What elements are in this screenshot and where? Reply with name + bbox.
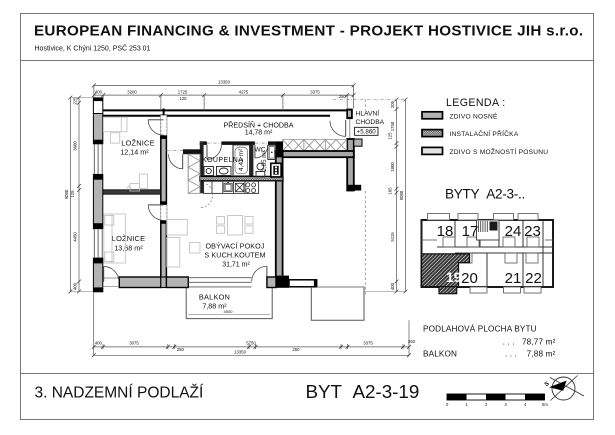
svg-text:OBÝVACÍ POKOJ: OBÝVACÍ POKOJ	[205, 241, 264, 250]
svg-text:. . . 7,88 m²: . . . 7,88 m²	[505, 350, 556, 359]
svg-text:5750: 5750	[246, 341, 256, 346]
svg-text:3375: 3375	[363, 341, 373, 346]
svg-text:9080: 9080	[399, 190, 404, 200]
svg-text:225: 225	[73, 97, 78, 105]
svg-text:ZDIVO S MOŽNOSTÍ POSUNU: ZDIVO S MOŽNOSTÍ POSUNU	[450, 147, 549, 156]
svg-text:S KUCH.KOUTEM: S KUCH.KOUTEM	[204, 251, 265, 260]
svg-text:. . . 78,77 m²: . . . 78,77 m²	[503, 338, 556, 347]
svg-text:400: 400	[73, 282, 78, 290]
svg-text:22: 22	[525, 270, 542, 287]
svg-text:3375: 3375	[310, 89, 320, 94]
svg-text:17: 17	[462, 223, 479, 240]
svg-text:BYT A2-3-19: BYT A2-3-19	[306, 381, 420, 402]
svg-text:21: 21	[505, 270, 522, 287]
svg-text:4450: 4450	[73, 232, 78, 242]
svg-text:3200: 3200	[127, 89, 137, 94]
svg-text:4,41 m²: 4,41 m²	[238, 148, 245, 171]
svg-text:1750: 1750	[390, 121, 395, 131]
svg-text:13350: 13350	[234, 350, 247, 355]
svg-text:205: 205	[390, 100, 395, 108]
svg-text:9080: 9080	[64, 189, 69, 199]
svg-text:250: 250	[339, 94, 347, 99]
svg-text:INSTALAČNÍ PŘÍČKA: INSTALAČNÍ PŘÍČKA	[450, 129, 519, 138]
svg-text:+5.860: +5.860	[357, 129, 377, 136]
svg-text:0: 0	[446, 402, 449, 407]
svg-text:Hostivice, K Chýni 1250, PSČ 2: Hostivice, K Chýni 1250, PSČ 253 01	[35, 44, 151, 53]
svg-text:BALKON: BALKON	[199, 293, 230, 302]
svg-text:LOŽNICE: LOŽNICE	[112, 234, 145, 243]
svg-text:19: 19	[446, 269, 462, 285]
svg-text:14,78 m²: 14,78 m²	[245, 129, 273, 136]
svg-text:23: 23	[524, 223, 541, 240]
svg-text:LEGENDA :: LEGENDA :	[446, 97, 506, 109]
svg-text:400: 400	[95, 341, 103, 346]
svg-text:250: 250	[292, 347, 300, 352]
svg-text:125: 125	[388, 132, 393, 140]
svg-text:24: 24	[505, 223, 522, 240]
svg-text:1800: 1800	[390, 162, 395, 172]
svg-text:3075: 3075	[129, 341, 139, 346]
svg-text:LOŽNICE: LOŽNICE	[121, 139, 154, 148]
svg-text:1725: 1725	[178, 89, 188, 94]
svg-text:250: 250	[408, 339, 416, 344]
svg-text:BYTY A2-3-..: BYTY A2-3-..	[445, 187, 525, 202]
svg-text:18: 18	[437, 223, 454, 240]
svg-text:BALKON: BALKON	[423, 350, 457, 359]
svg-text:1: 1	[466, 402, 469, 407]
svg-text:HLAVNÍ: HLAVNÍ	[356, 109, 380, 118]
svg-text:31,71 m²: 31,71 m²	[222, 261, 250, 268]
svg-text:PODLAHOVÁ PLOCHA BYTU: PODLAHOVÁ PLOCHA BYTU	[423, 324, 537, 334]
svg-text:12,14 m²: 12,14 m²	[120, 148, 149, 157]
svg-text:13350: 13350	[218, 80, 231, 85]
svg-text:KOUPELNA: KOUPELNA	[202, 157, 243, 164]
svg-text:125: 125	[179, 96, 187, 101]
svg-text:250: 250	[177, 347, 185, 352]
svg-text:5115: 5115	[390, 232, 395, 242]
svg-text:3. NADZEMNÍ PODLAŽÍ: 3. NADZEMNÍ PODLAŽÍ	[35, 385, 204, 402]
svg-text:3600: 3600	[73, 141, 78, 151]
svg-text:ZDIVO NOSNÉ: ZDIVO NOSNÉ	[450, 111, 499, 120]
svg-text:165: 165	[388, 187, 393, 195]
svg-text:400: 400	[390, 282, 395, 290]
svg-text:PŘEDSÍŇ + CHODBA: PŘEDSÍŇ + CHODBA	[224, 120, 294, 129]
svg-text:CHODBA: CHODBA	[356, 119, 385, 126]
svg-text:5m: 5m	[542, 402, 548, 407]
svg-text:EUROPEAN FINANCING & INVESTMEN: EUROPEAN FINANCING & INVESTMENT - PROJEK…	[34, 23, 583, 40]
svg-text:4: 4	[524, 402, 527, 407]
svg-text:2: 2	[485, 402, 488, 407]
svg-text:4275: 4275	[239, 89, 249, 94]
svg-text:3: 3	[505, 402, 508, 407]
svg-text:7,88 m²: 7,88 m²	[202, 302, 227, 311]
svg-text:20: 20	[461, 270, 478, 287]
svg-text:2,05 m²: 2,05 m²	[261, 151, 268, 172]
svg-text:400: 400	[95, 89, 103, 94]
svg-text:13,68 m²: 13,68 m²	[114, 244, 143, 253]
